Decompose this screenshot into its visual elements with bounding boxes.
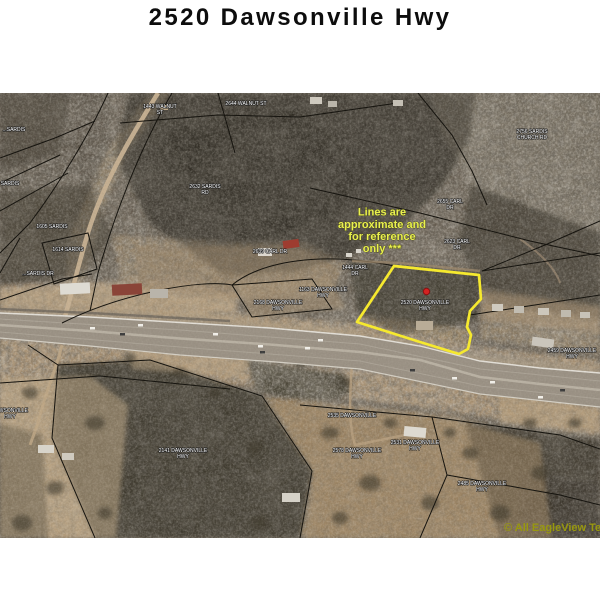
svg-text:DR: DR [453, 245, 461, 251]
svg-text:2535 DAWSONVILLE: 2535 DAWSONVILLE [328, 413, 377, 419]
svg-text:HWY: HWY [409, 446, 421, 452]
svg-text:HWY: HWY [476, 487, 488, 493]
svg-text:...SARDIS: ...SARDIS [3, 127, 26, 133]
svg-text:© All EagleView Te: © All EagleView Te [504, 522, 600, 534]
svg-text:HWY: HWY [177, 454, 189, 460]
svg-text:HWY: HWY [272, 306, 284, 312]
svg-text:CHURCH RD: CHURCH RD [517, 135, 548, 141]
svg-text:HWY: HWY [317, 293, 329, 299]
svg-text:HWY: HWY [419, 306, 431, 312]
svg-text:HWY: HWY [566, 354, 578, 360]
svg-text:HWY: HWY [351, 454, 363, 460]
svg-text:RD: RD [201, 190, 209, 196]
svg-text:2644 WALNUT ST: 2644 WALNUT ST [225, 101, 266, 107]
svg-text:approximate and: approximate and [338, 219, 426, 231]
svg-text:SARDIS: SARDIS [1, 181, 20, 187]
svg-text:ST: ST [157, 110, 163, 116]
svg-text:1605 SARDIS: 1605 SARDIS [36, 224, 68, 230]
svg-text:2639 CARL DR: 2639 CARL DR [253, 249, 288, 255]
svg-text:...SARDIS DR: ...SARDIS DR [22, 271, 54, 277]
svg-text:only ***: only *** [363, 243, 402, 255]
svg-text:for reference: for reference [348, 231, 415, 243]
svg-text:DR: DR [351, 271, 359, 277]
svg-text:Lines are: Lines are [358, 207, 406, 219]
svg-text:HWY: HWY [4, 414, 16, 420]
svg-text:1614 SARDIS: 1614 SARDIS [52, 247, 84, 253]
svg-text:DR: DR [446, 205, 454, 211]
